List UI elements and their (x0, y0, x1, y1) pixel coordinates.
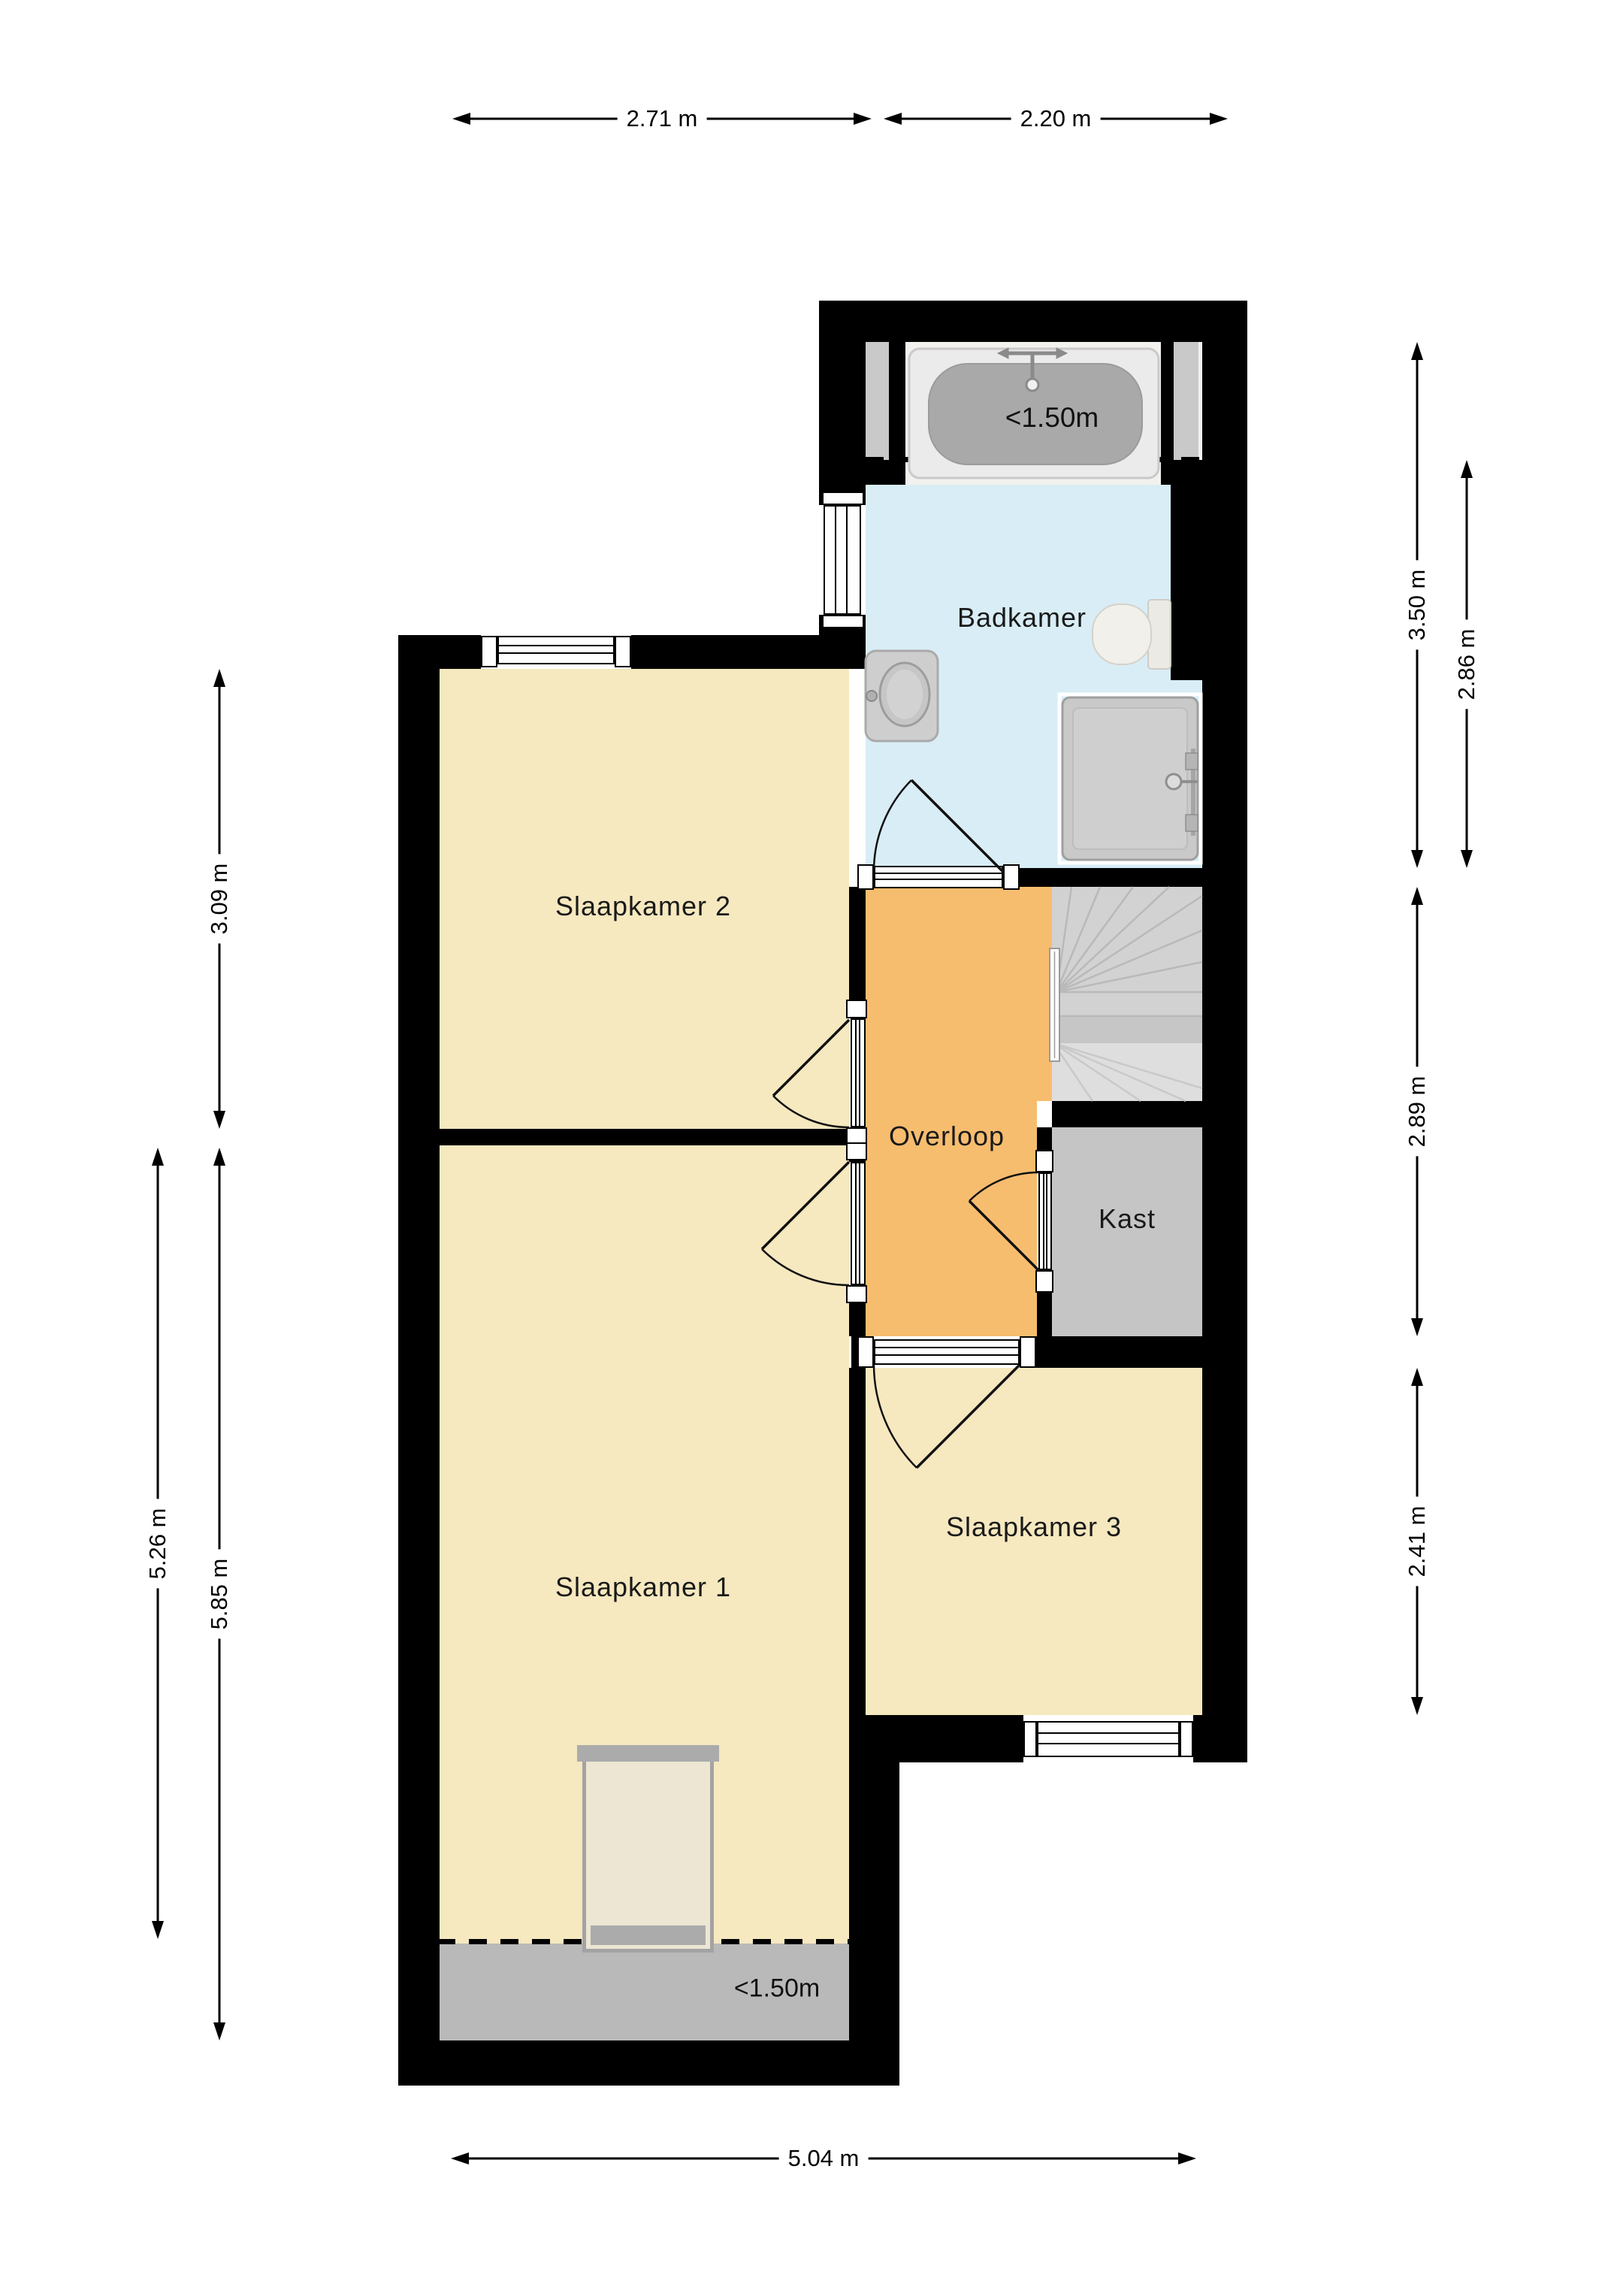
washbasin-icon (866, 651, 938, 741)
room-label-slaapkamer2: Slaapkamer 2 (555, 891, 731, 922)
door-slaapkamer1 (762, 1162, 849, 1285)
door-slaapkamer3 (874, 1365, 1020, 1468)
room-label-badkamer: Badkamer (957, 602, 1087, 634)
dimension-right-badkamer: 3.50 m (1407, 342, 1428, 868)
dimension-bottom: 5.04 m (451, 2148, 1196, 2169)
toilet-icon (1093, 600, 1171, 669)
fixtures-overlay (0, 0, 1623, 2296)
room-label-kast: Kast (1099, 1203, 1156, 1235)
room-label-slaapkamer3: Slaapkamer 3 (946, 1511, 1122, 1543)
shower-icon (1059, 694, 1201, 863)
dimension-left-inner-bottom: 5.85 m (209, 1148, 230, 2040)
room-label-overloop: Overloop (889, 1121, 1005, 1152)
stairs-railing-icon (1050, 948, 1059, 1061)
dimension-right-badkamer-inner: 2.86 m (1456, 460, 1477, 868)
door-badkamer (874, 780, 1003, 872)
headroom-label-slaapkamer1: <1.50m (734, 1974, 820, 2004)
dimension-right-slaapkamer3: 2.41 m (1407, 1368, 1428, 1715)
dimension-left-outer: 5.26 m (147, 1148, 168, 1939)
staircase-icon (1052, 887, 1202, 1016)
headroom-label-badkamer: <1.50m (1005, 402, 1099, 434)
dimension-left-inner-top: 3.09 m (209, 669, 230, 1129)
floorplan: Badkamer Slaapkamer 2 Slaapkamer 1 Slaap… (0, 0, 1623, 2296)
dimension-top-right: 2.20 m (884, 108, 1228, 129)
door-slaapkamer2 (773, 1020, 849, 1127)
room-label-slaapkamer1: Slaapkamer 1 (555, 1572, 731, 1603)
dimension-right-overloop: 2.89 m (1407, 887, 1428, 1336)
dimension-top-left: 2.71 m (452, 108, 872, 129)
staircase-lower-treads (1053, 1043, 1202, 1101)
door-kast (969, 1172, 1038, 1270)
